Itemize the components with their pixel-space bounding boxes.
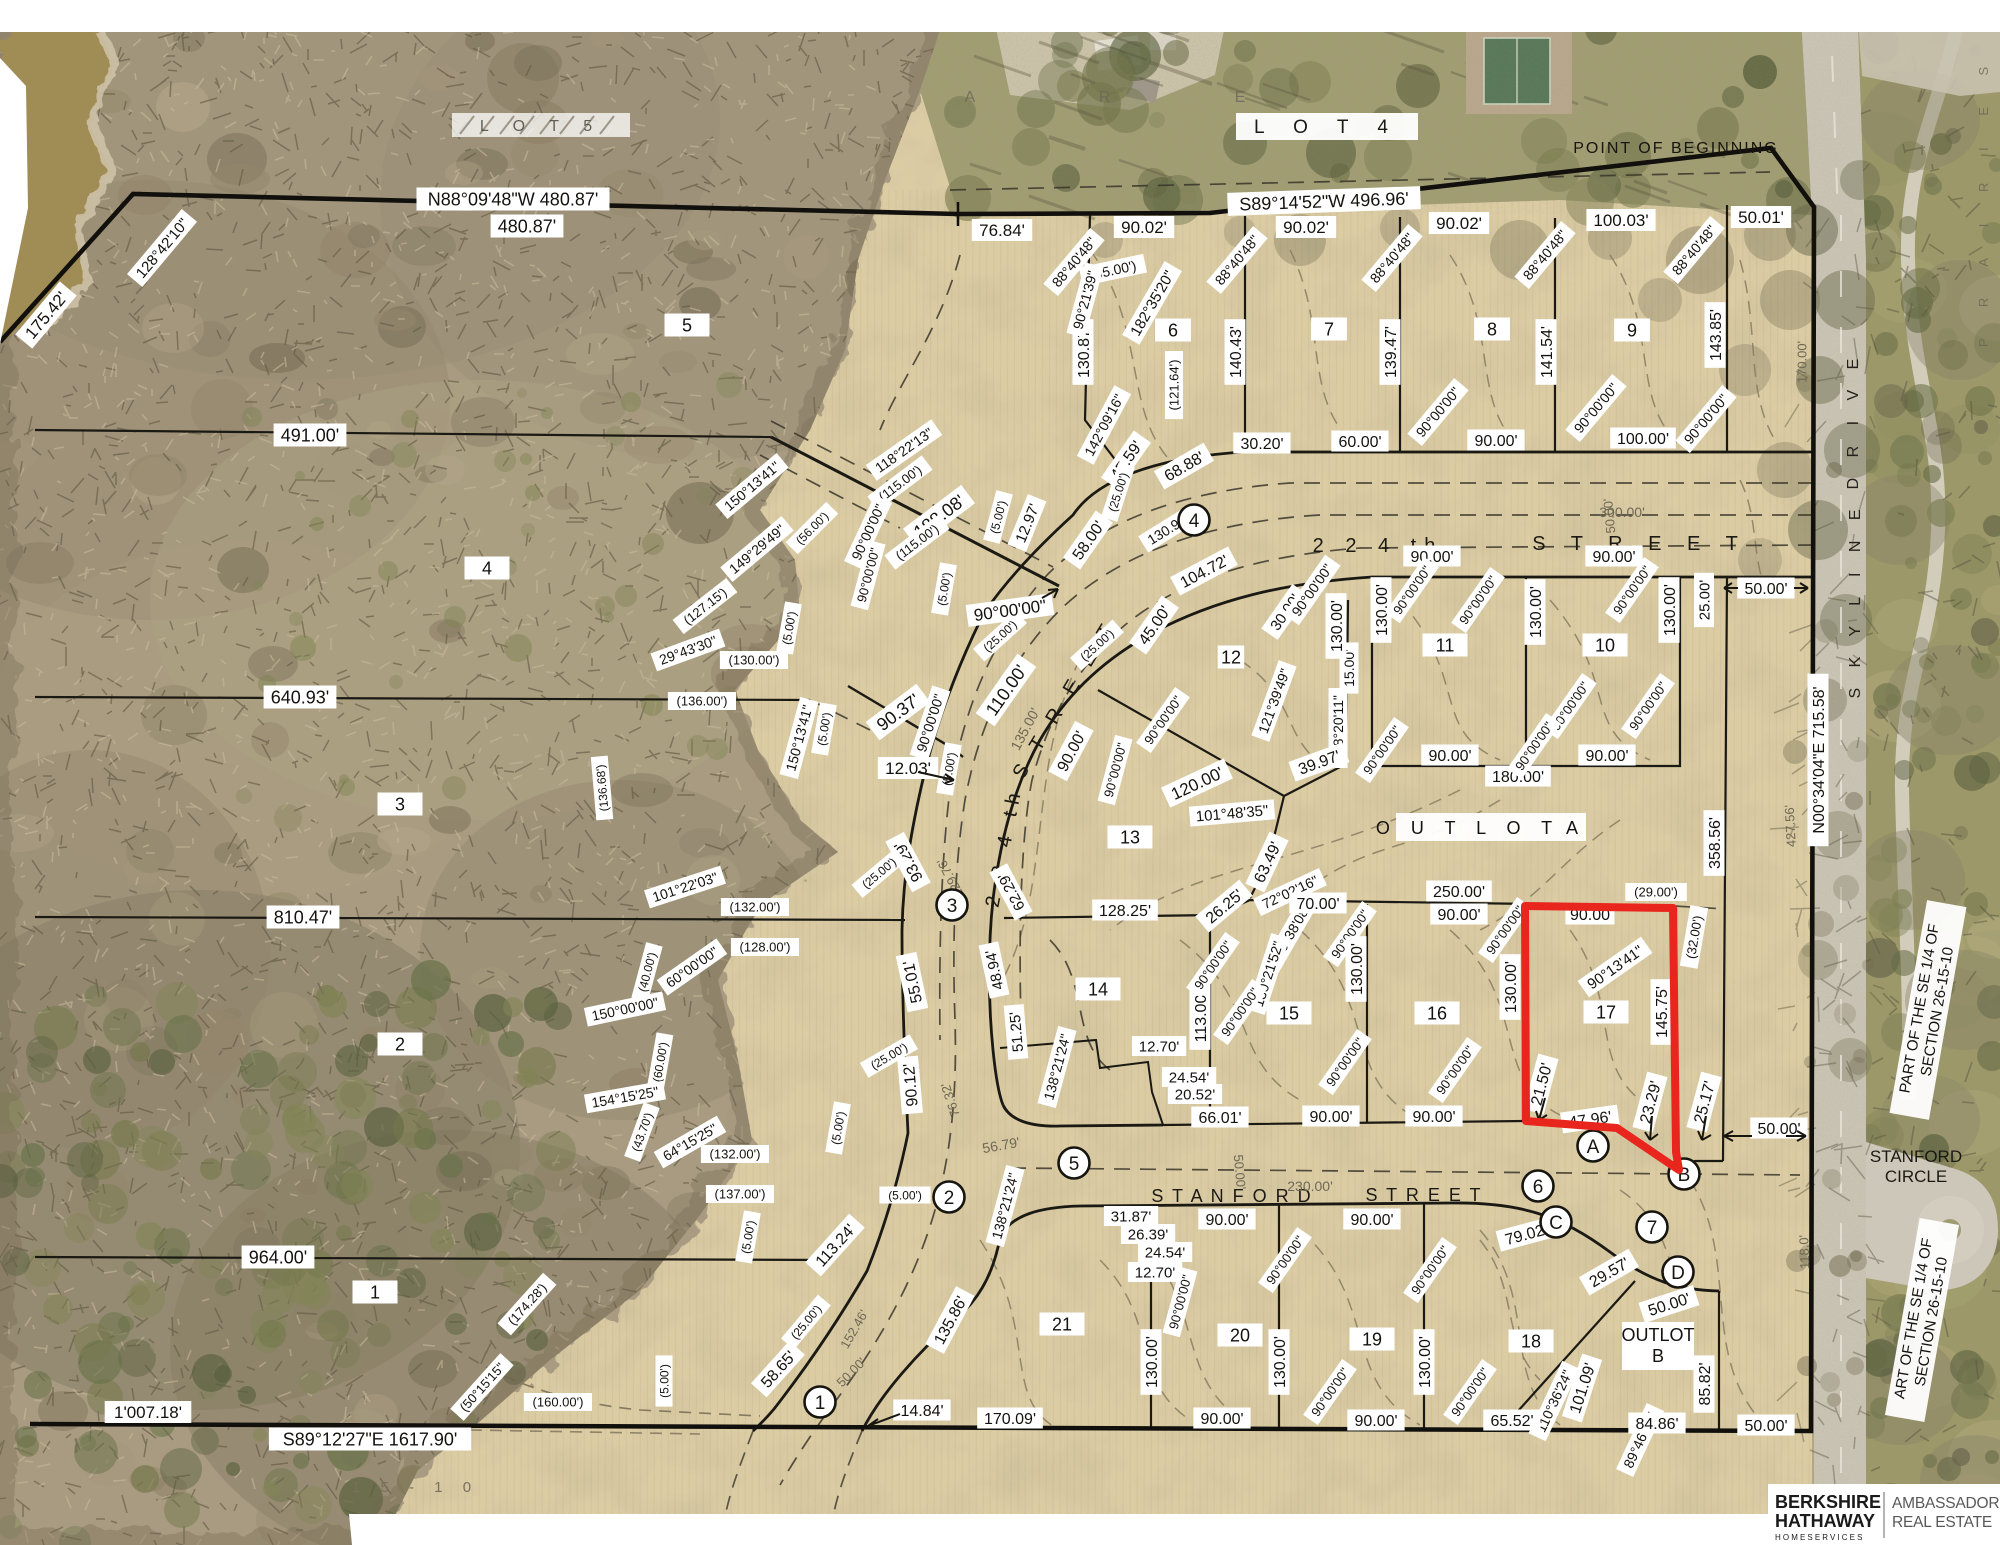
- svg-text:S T R E E T: S T R E E T: [1365, 1185, 1482, 1205]
- svg-text:130.00': 130.00': [1329, 600, 1346, 652]
- svg-text:(137.00'): (137.00'): [715, 1187, 766, 1202]
- svg-text:BERKSHIRE: BERKSHIRE: [1775, 1492, 1881, 1512]
- svg-text:20: 20: [1230, 1326, 1250, 1346]
- svg-text:10: 10: [1595, 636, 1615, 656]
- svg-text:HATHAWAY: HATHAWAY: [1775, 1511, 1875, 1531]
- svg-text:50.00': 50.00': [1600, 498, 1618, 534]
- svg-text:90.00': 90.00': [1592, 549, 1635, 566]
- svg-text:A: A: [1587, 1137, 1600, 1158]
- svg-text:7: 7: [1324, 320, 1334, 340]
- svg-text:12.70': 12.70': [1139, 1038, 1180, 1055]
- svg-text:50.00': 50.00': [1231, 1154, 1249, 1190]
- svg-text:90.00': 90.00': [1205, 1212, 1248, 1229]
- svg-text:130.00': 130.00': [1144, 1336, 1161, 1388]
- svg-text:24.54': 24.54': [1169, 1069, 1210, 1086]
- svg-text:B: B: [1652, 1346, 1664, 1366]
- svg-text:OUTLOT: OUTLOT: [1621, 1325, 1694, 1345]
- svg-text:L O T 5: L O T 5: [480, 118, 602, 135]
- svg-text:60.00': 60.00': [1338, 434, 1381, 451]
- svg-text:130.00': 130.00': [1349, 943, 1366, 995]
- svg-text:90.00': 90.00': [1474, 433, 1517, 450]
- svg-text:427.56': 427.56': [1782, 805, 1799, 848]
- svg-text:3: 3: [395, 795, 405, 815]
- svg-text:100.00': 100.00': [1617, 431, 1669, 448]
- svg-text:D R I V E: D R I V E: [1845, 351, 1862, 490]
- svg-text:(132.00'): (132.00'): [710, 1147, 761, 1162]
- svg-text:14.84': 14.84': [900, 1403, 943, 1420]
- svg-text:(5.00'): (5.00'): [888, 1188, 922, 1202]
- svg-text:170.00': 170.00': [1795, 341, 1810, 383]
- svg-text:130.00': 130.00': [1503, 961, 1520, 1013]
- svg-text:51.25': 51.25': [1007, 1011, 1027, 1053]
- svg-text:(121.64'): (121.64'): [1167, 360, 1182, 411]
- svg-text:1: 1: [815, 1393, 826, 1414]
- svg-text:(5.00'): (5.00'): [657, 1364, 671, 1398]
- svg-text:26.39': 26.39': [1128, 1226, 1169, 1243]
- svg-text:130.00': 130.00': [1272, 1336, 1289, 1388]
- svg-text:C: C: [1549, 1213, 1563, 1234]
- svg-text:CIRCLE: CIRCLE: [1885, 1167, 1947, 1186]
- svg-text:143.85': 143.85': [1708, 309, 1725, 361]
- svg-text:90.00': 90.00': [1354, 1413, 1397, 1430]
- svg-text:5: 5: [1069, 1154, 1080, 1175]
- svg-text:1: 1: [370, 1283, 380, 1303]
- svg-text:O U T L O T: O U T L O T: [1376, 818, 1560, 838]
- svg-text:13: 13: [1120, 828, 1140, 848]
- svg-text:(136.00'): (136.00'): [677, 694, 728, 709]
- svg-text:(128.00'): (128.00'): [740, 940, 791, 955]
- svg-text:141.54': 141.54': [1539, 326, 1556, 378]
- svg-text:S89°12'27"E 1617.90': S89°12'27"E 1617.90': [283, 1430, 458, 1450]
- svg-text:HOMESERVICES: HOMESERVICES: [1775, 1533, 1865, 1542]
- svg-text:250.00': 250.00': [1433, 884, 1485, 901]
- svg-text:12.03': 12.03': [885, 759, 931, 778]
- svg-text:2: 2: [944, 1188, 955, 1209]
- svg-text:D: D: [1671, 1263, 1685, 1284]
- svg-text:11: 11: [1436, 636, 1455, 656]
- svg-text:640.93': 640.93': [271, 688, 330, 708]
- svg-text:N00°34'04"E 715.58': N00°34'04"E 715.58': [1811, 686, 1828, 833]
- svg-text:P R A I R I E S: P R A I R I E S: [1976, 53, 1991, 347]
- svg-text:21: 21: [1052, 1315, 1072, 1335]
- svg-text:20.52': 20.52': [1175, 1086, 1216, 1103]
- svg-text:6: 6: [1168, 321, 1178, 341]
- svg-text:5: 5: [682, 316, 692, 336]
- svg-text:480.87': 480.87': [498, 217, 557, 237]
- svg-text:7: 7: [1647, 1218, 1658, 1239]
- svg-text:118.0': 118.0': [1796, 1235, 1812, 1270]
- svg-text:358.56': 358.56': [1707, 817, 1724, 869]
- svg-text:9: 9: [1627, 321, 1637, 341]
- svg-text:130.00': 130.00': [1528, 586, 1545, 638]
- svg-text:90.00': 90.00': [1428, 748, 1471, 765]
- svg-text:18: 18: [1521, 1332, 1541, 1352]
- svg-text:84.86': 84.86': [1635, 1416, 1678, 1433]
- svg-text:128.25': 128.25': [1099, 903, 1151, 920]
- svg-text:139.47': 139.47': [1383, 326, 1400, 378]
- svg-text:L O T 4: L O T 4: [1254, 117, 1400, 138]
- svg-text:24.54': 24.54': [1145, 1244, 1186, 1261]
- svg-text:90.02': 90.02': [1121, 218, 1167, 237]
- svg-text:15: 15: [1279, 1004, 1299, 1024]
- svg-text:S K Y L I N E: S K Y L I N E: [1847, 501, 1864, 698]
- svg-text:65.52': 65.52': [1490, 1413, 1533, 1430]
- svg-text:100.03': 100.03': [1593, 211, 1648, 230]
- svg-text:90.00': 90.00': [1350, 1212, 1393, 1229]
- svg-text:1'007.18': 1'007.18': [114, 1403, 182, 1422]
- svg-text:3: 3: [947, 896, 958, 917]
- svg-text:2: 2: [395, 1035, 405, 1055]
- svg-text:70.00': 70.00': [1296, 896, 1339, 913]
- svg-text:REAL ESTATE: REAL ESTATE: [1892, 1514, 1992, 1531]
- svg-text:19: 19: [1362, 1330, 1382, 1350]
- svg-text:(132.00'): (132.00'): [730, 900, 781, 915]
- svg-text:30.20': 30.20': [1240, 436, 1283, 453]
- svg-text:A R E: A R E: [965, 89, 1306, 106]
- svg-text:90.00': 90.00': [1585, 748, 1628, 765]
- svg-text:16: 16: [1427, 1004, 1447, 1024]
- svg-text:50.00': 50.00': [1744, 1418, 1787, 1435]
- svg-text:50.01': 50.01': [1738, 208, 1784, 227]
- svg-text:964.00': 964.00': [249, 1248, 308, 1268]
- svg-text:90.02': 90.02': [1283, 218, 1329, 237]
- svg-text:N88°09'48"W 480.87': N88°09'48"W 480.87': [428, 190, 599, 210]
- svg-text:66.01': 66.01': [1198, 1110, 1241, 1127]
- svg-text:AMBASSADOR: AMBASSADOR: [1892, 1495, 1999, 1512]
- svg-text:50.00': 50.00': [1744, 581, 1787, 598]
- svg-text:230.00': 230.00': [1287, 1178, 1333, 1194]
- svg-text:140.43': 140.43': [1228, 326, 1245, 378]
- svg-text:145.75': 145.75': [1654, 986, 1671, 1038]
- svg-text:6: 6: [1533, 1177, 1544, 1198]
- svg-text:113.00': 113.00': [1193, 992, 1210, 1043]
- svg-text:(130.00'): (130.00'): [729, 653, 780, 668]
- svg-text:90.00': 90.00': [1309, 1109, 1352, 1126]
- svg-text:491.00': 491.00': [281, 426, 340, 446]
- svg-text:12.70': 12.70': [1135, 1264, 1176, 1281]
- svg-text:25.00': 25.00': [1696, 580, 1713, 621]
- svg-text:90.00': 90.00': [1437, 907, 1480, 924]
- svg-text:130.00': 130.00': [1662, 584, 1679, 636]
- svg-text:90.00': 90.00': [1200, 1411, 1243, 1428]
- svg-text:130.00': 130.00': [1417, 1336, 1434, 1388]
- svg-text:170.09': 170.09': [984, 1411, 1036, 1428]
- svg-text:8: 8: [1487, 320, 1497, 340]
- svg-text:14: 14: [1088, 980, 1108, 1000]
- svg-text:(29.00'): (29.00'): [1634, 885, 1678, 900]
- svg-text:85.82': 85.82': [1697, 1362, 1714, 1405]
- svg-text:31.87': 31.87': [1111, 1208, 1152, 1225]
- svg-text:90.02': 90.02': [1436, 214, 1482, 233]
- svg-text:(160.00'): (160.00'): [533, 1395, 584, 1410]
- svg-text:A: A: [1566, 818, 1578, 838]
- svg-text:17: 17: [1596, 1003, 1616, 1023]
- svg-text:POINT OF BEGINNING: POINT OF BEGINNING: [1573, 140, 1779, 157]
- svg-text:12: 12: [1221, 648, 1241, 668]
- svg-text:STANFORD: STANFORD: [1870, 1147, 1962, 1166]
- svg-text:1 5 - 1 0: 1 5 - 1 0: [352, 1479, 479, 1496]
- svg-text:4: 4: [482, 559, 492, 579]
- svg-text:4: 4: [1189, 511, 1200, 532]
- svg-text:90.00': 90.00': [1412, 1109, 1455, 1126]
- svg-text:76.84': 76.84': [979, 221, 1025, 240]
- svg-text:810.47': 810.47': [274, 908, 333, 928]
